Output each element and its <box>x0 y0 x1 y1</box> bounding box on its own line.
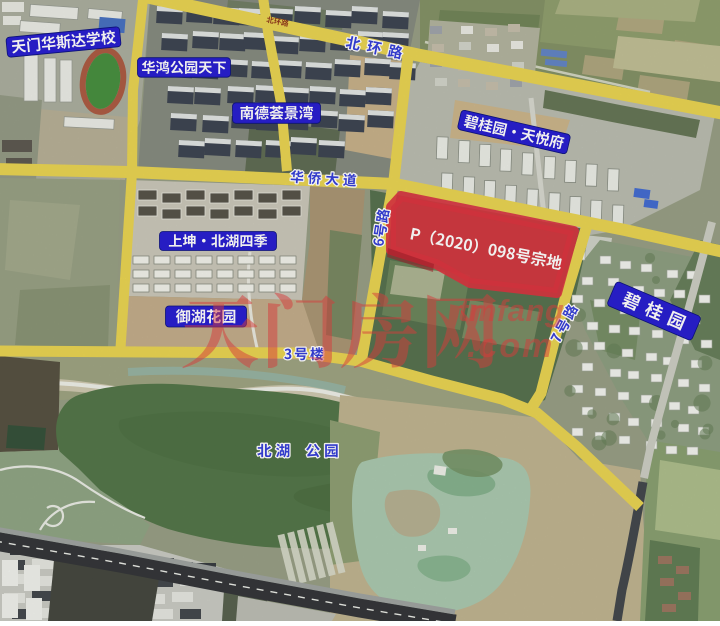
svg-text:.com: .com <box>467 327 554 365</box>
svg-text:tmfang: tmfang <box>458 293 564 328</box>
